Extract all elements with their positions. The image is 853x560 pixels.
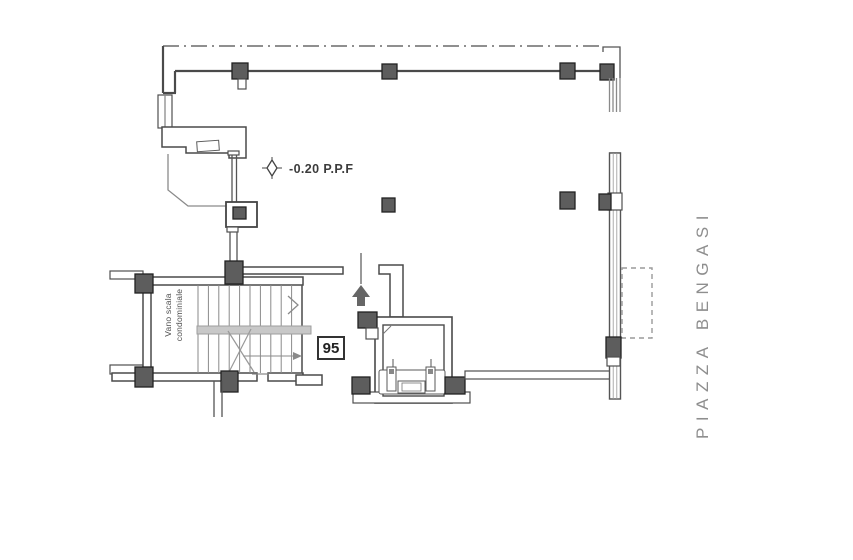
column	[600, 64, 614, 80]
entry-box-column	[226, 151, 257, 262]
elevator-entry-arrow	[352, 253, 370, 306]
column	[560, 192, 575, 209]
column	[225, 261, 243, 284]
column	[135, 274, 153, 293]
column	[599, 194, 611, 210]
street-name-label: PIAZZA BENGASI	[693, 209, 712, 439]
left-window	[158, 95, 172, 128]
stairwell-label-line2: condominiale	[174, 289, 184, 342]
floor-plan-page: -0.20 P.P.F Vano sca	[0, 0, 853, 560]
elevator-lobby-wall	[379, 265, 403, 317]
floor-plan-canvas: -0.20 P.P.F Vano sca	[0, 0, 853, 560]
column	[233, 207, 246, 219]
column	[606, 337, 621, 358]
stairwell: Vano scala condominiale 95	[110, 261, 344, 417]
south-wall	[465, 371, 610, 379]
corridor-outline	[168, 154, 226, 206]
stairwell-label-line1: Vano scala	[163, 293, 173, 336]
column	[560, 63, 575, 79]
level-label: -0.20 P.P.F	[289, 162, 353, 176]
unit-number-box: 95	[318, 337, 344, 359]
column	[382, 64, 397, 79]
free-columns	[382, 192, 575, 212]
stair-direction-chevron	[288, 296, 298, 314]
elevator	[352, 253, 610, 403]
unit-number-label: 95	[323, 340, 340, 357]
column	[445, 377, 465, 394]
stair-walk-arrow	[243, 352, 302, 360]
column	[382, 198, 395, 212]
top-wall-columns	[232, 63, 614, 89]
stair-landing	[197, 326, 311, 334]
column	[352, 377, 370, 394]
right-facade	[599, 78, 652, 399]
column	[232, 63, 248, 79]
dashed-opening	[622, 268, 652, 338]
column	[135, 367, 153, 387]
level-marker	[262, 157, 282, 179]
column	[358, 312, 377, 328]
column	[221, 371, 238, 392]
